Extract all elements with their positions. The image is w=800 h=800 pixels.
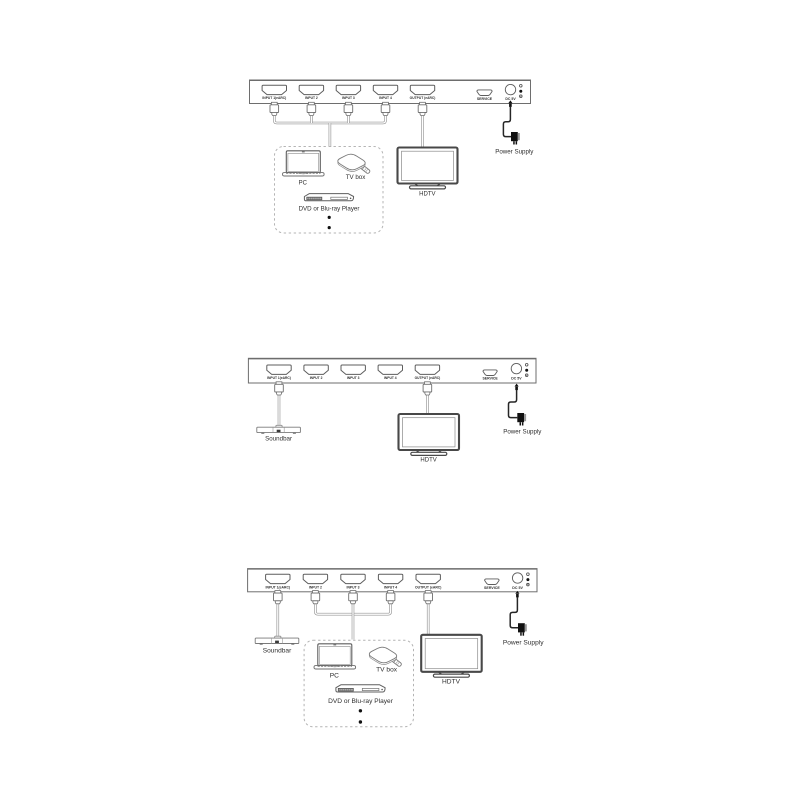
svg-text:INPUT 1(eARC): INPUT 1(eARC): [262, 96, 286, 100]
svg-text:OUTPUT (eARC): OUTPUT (eARC): [415, 585, 441, 589]
svg-text:OUTPUT (eARC): OUTPUT (eARC): [410, 96, 436, 100]
svg-text:DC 5V: DC 5V: [511, 377, 522, 381]
svg-text:Power Supply: Power Supply: [503, 429, 542, 436]
svg-text:INPUT 3: INPUT 3: [347, 376, 360, 380]
svg-text:INPUT 3: INPUT 3: [342, 96, 355, 100]
svg-text:Soundbar: Soundbar: [265, 435, 292, 442]
svg-text:INPUT 2: INPUT 2: [310, 376, 323, 380]
svg-text:DVD or Blu-ray Player: DVD or Blu-ray Player: [299, 206, 360, 213]
svg-text:DC 5V: DC 5V: [512, 586, 523, 590]
svg-text:INPUT 1(eARC): INPUT 1(eARC): [267, 376, 291, 380]
svg-text:Power Supply: Power Supply: [503, 640, 544, 647]
svg-text:PC: PC: [299, 180, 308, 186]
svg-text:PC: PC: [330, 672, 339, 679]
svg-text:HDTV: HDTV: [442, 679, 461, 686]
svg-text:OUTPUT (eARC): OUTPUT (eARC): [415, 376, 441, 380]
svg-text:DVD or Blu-ray Player: DVD or Blu-ray Player: [328, 698, 394, 705]
svg-text:SERVICE: SERVICE: [482, 377, 498, 381]
svg-text:SERVICE: SERVICE: [477, 97, 493, 101]
svg-text:INPUT 4: INPUT 4: [379, 96, 392, 100]
svg-text:INPUT 3: INPUT 3: [347, 585, 360, 589]
svg-text:INPUT 4: INPUT 4: [384, 376, 397, 380]
svg-text:Power Supply: Power Supply: [495, 148, 534, 155]
svg-text:SERVICE: SERVICE: [484, 586, 500, 590]
svg-text:DC 5V: DC 5V: [505, 97, 516, 101]
svg-text:HDTV: HDTV: [419, 192, 435, 198]
svg-text:HDTV: HDTV: [420, 458, 436, 464]
svg-text:Soundbar: Soundbar: [263, 647, 292, 654]
svg-text:INPUT 2: INPUT 2: [305, 96, 318, 100]
svg-text:TV box: TV box: [376, 666, 398, 673]
svg-text:INPUT 2: INPUT 2: [309, 585, 322, 589]
svg-text:TV box: TV box: [346, 174, 367, 181]
svg-text:INPUT 1(eARC): INPUT 1(eARC): [266, 585, 291, 589]
svg-text:INPUT 4: INPUT 4: [384, 585, 397, 589]
